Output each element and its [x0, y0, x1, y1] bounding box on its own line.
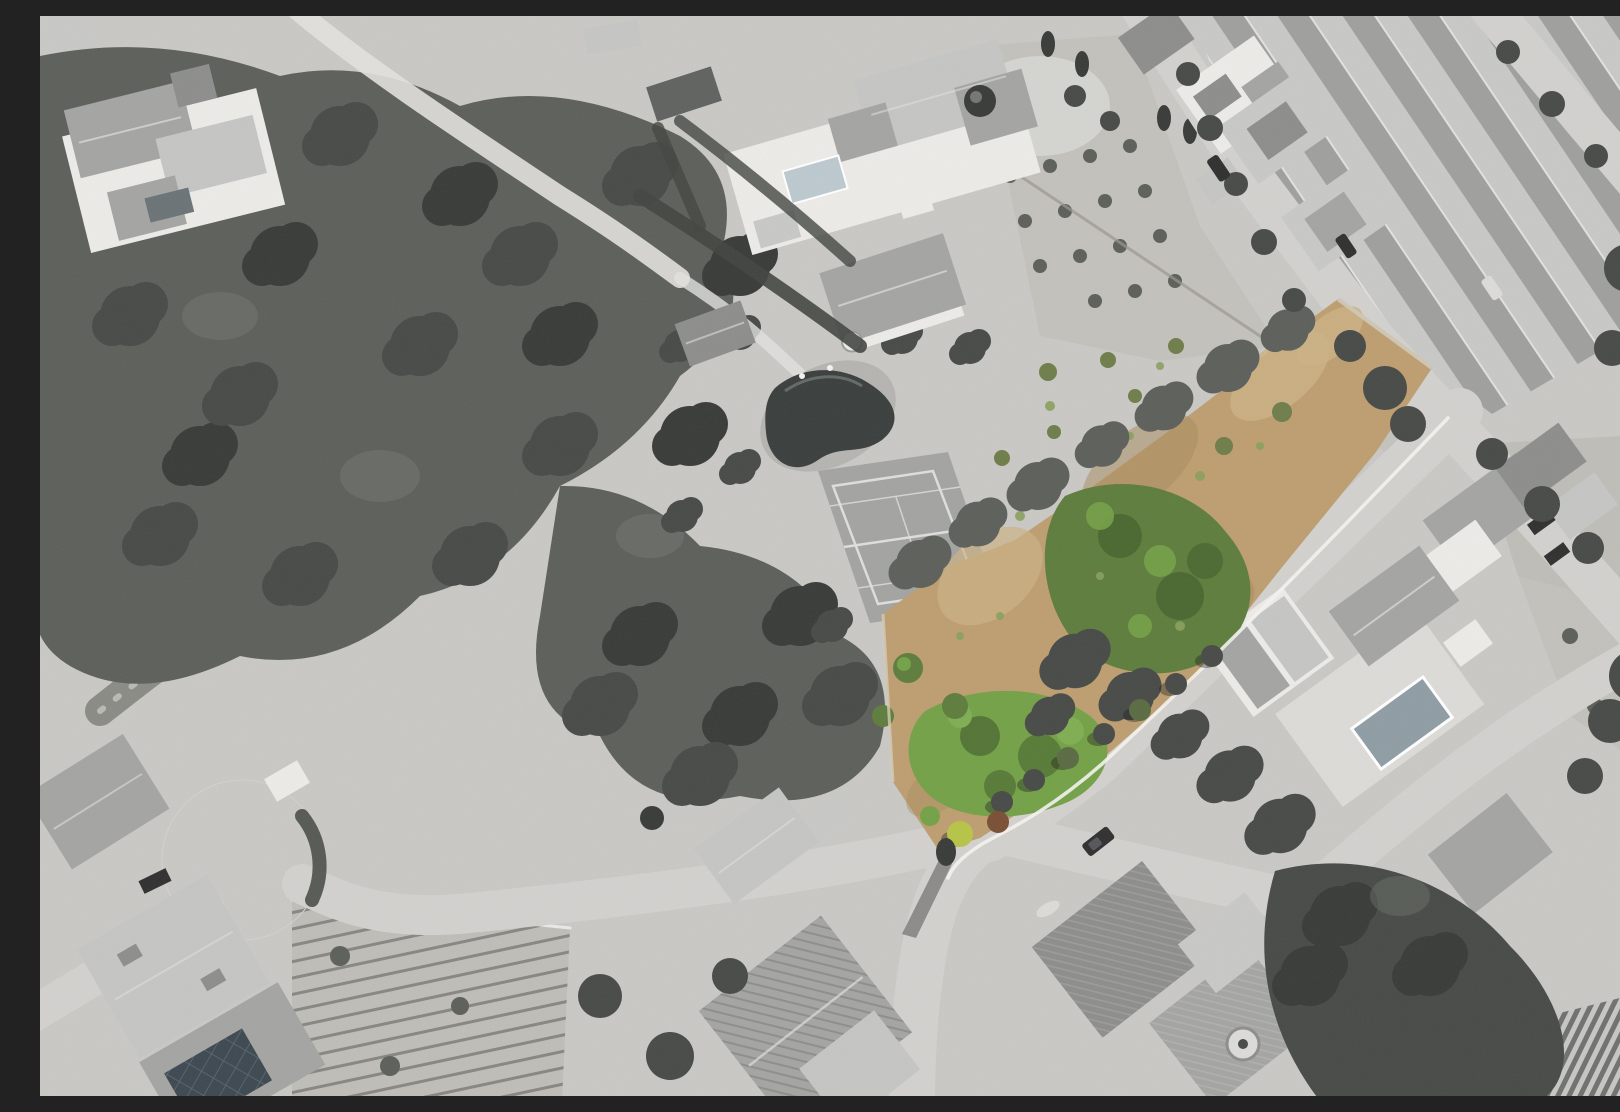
- grain-overlay: [40, 16, 1620, 1096]
- aerial-photo: Top-down aerial photograph of a Mediterr…: [40, 16, 1620, 1096]
- aerial-photo-canvas: [40, 16, 1620, 1096]
